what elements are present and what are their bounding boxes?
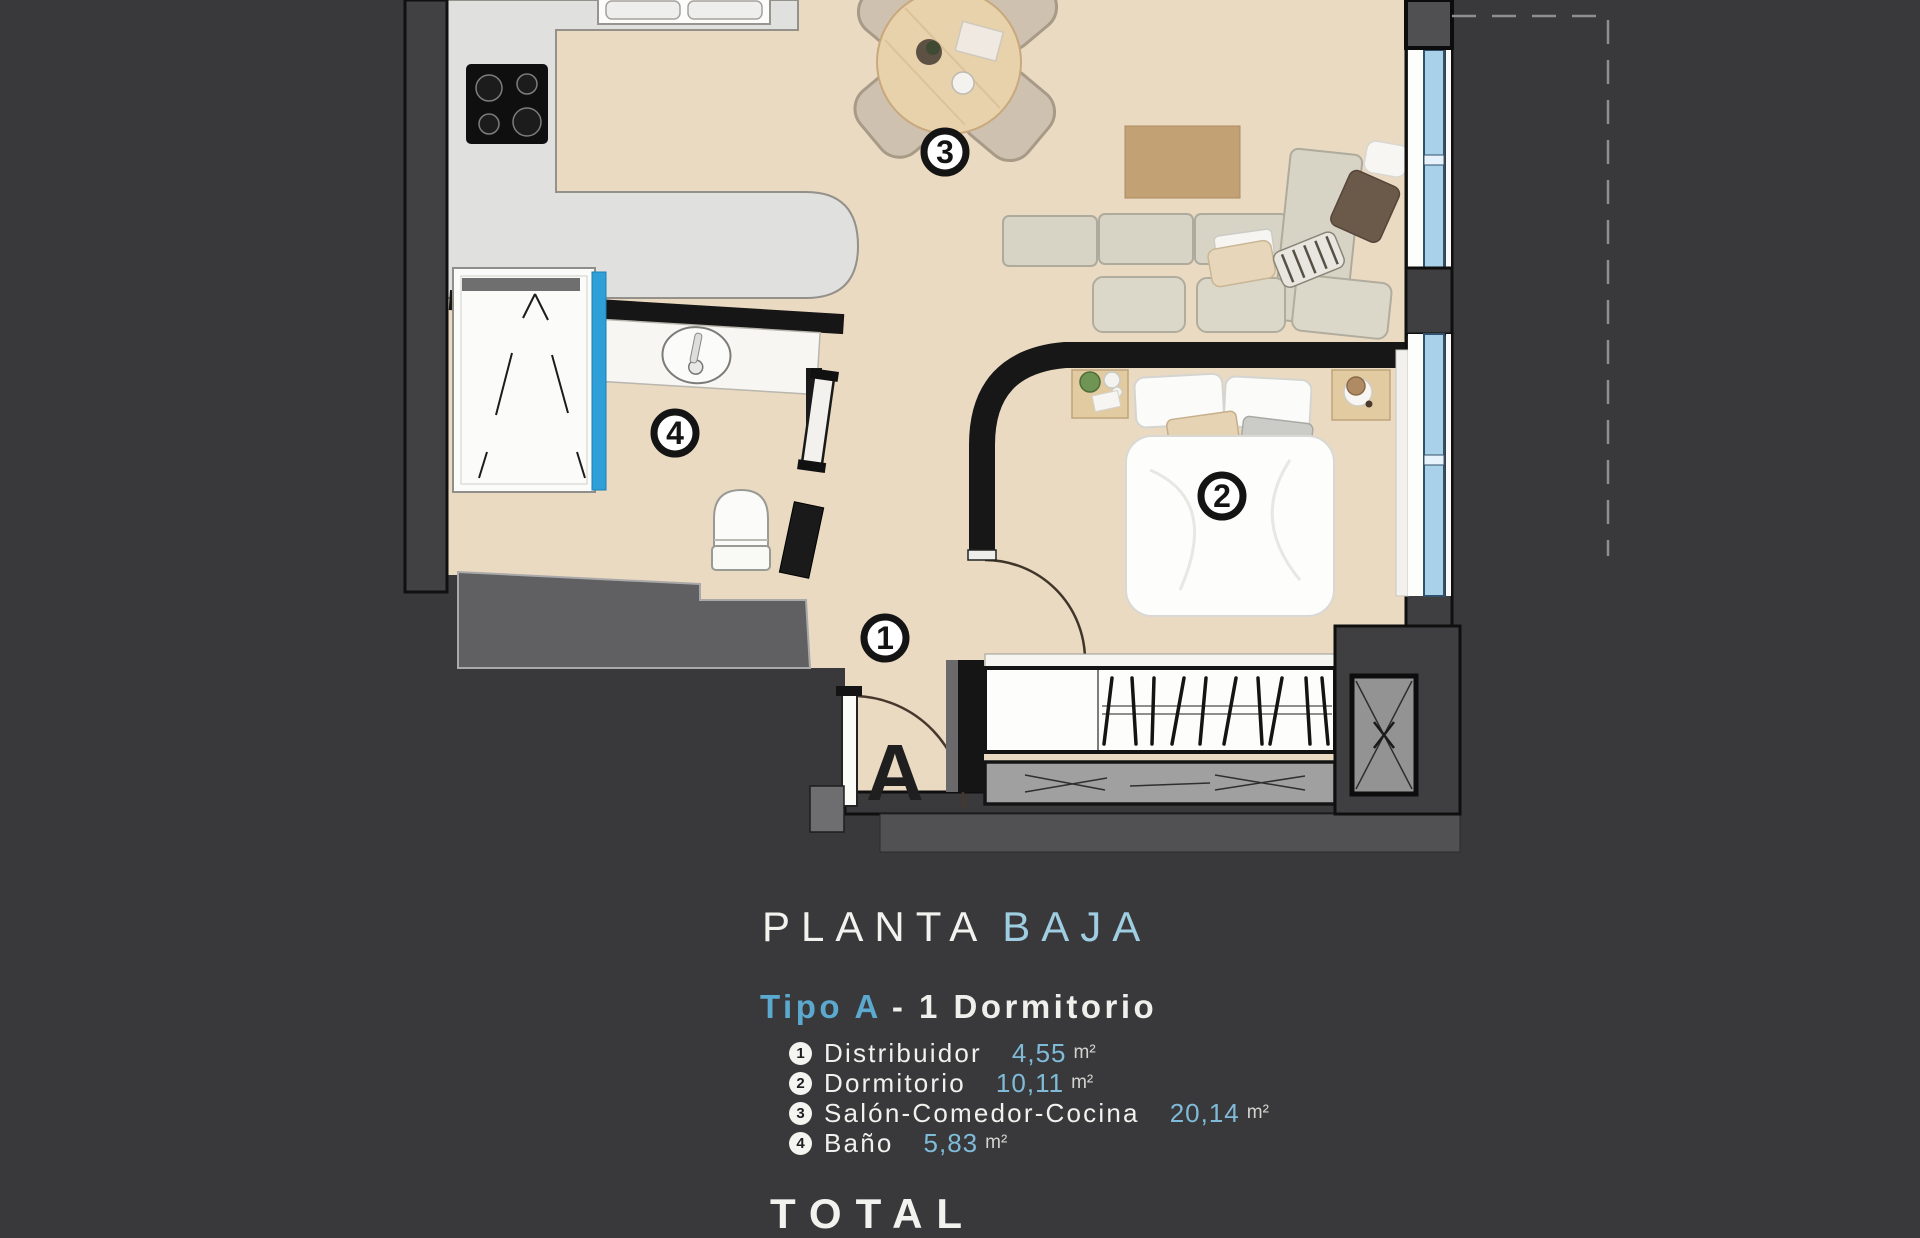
room-name: Salón-Comedor-Cocina <box>824 1098 1140 1129</box>
room-unit: m² <box>985 1132 1007 1154</box>
legend-row-dormitorio: 2 Dormitorio 10,11 m² <box>789 1068 1269 1098</box>
wall-left <box>405 0 447 592</box>
room-marker-1: 1 <box>864 617 906 659</box>
dining-table <box>877 0 1021 134</box>
legend-row-salon-comedor-cocina: 3 Salón-Comedor-Cocina 20,14 m² <box>789 1098 1269 1128</box>
rug <box>1125 126 1240 198</box>
boundary-dashed-line <box>1452 16 1608 556</box>
total-label: TOTAL <box>770 1190 976 1238</box>
table-plate <box>952 72 974 94</box>
room-marker-label: 3 <box>936 134 954 170</box>
room-legend: 1 Distribuidor 4,55 m² 2 Dormitorio 10,1… <box>789 1038 1269 1158</box>
room-marker-label: 2 <box>1213 478 1231 514</box>
shaft <box>1335 626 1460 814</box>
shower <box>453 268 606 492</box>
legend-bullet: 1 <box>789 1042 812 1065</box>
room-marker-2: 2 <box>1201 475 1243 517</box>
plan-subtitle: Tipo A- 1 Dormitorio <box>760 988 1157 1026</box>
shower-bar <box>462 278 580 291</box>
room-marker-label: 4 <box>666 415 684 451</box>
exterior-strip <box>880 814 1460 852</box>
room-name: Distribuidor <box>824 1038 982 1069</box>
room-marker-3: 3 <box>924 131 966 173</box>
room-unit: m² <box>1074 1042 1096 1064</box>
room-name: Baño <box>824 1128 894 1159</box>
window-living <box>1408 50 1451 268</box>
subtitle-type: Tipo A <box>760 988 882 1025</box>
room-area: 5,83 <box>924 1128 979 1159</box>
nightstand-plant <box>1080 372 1100 392</box>
room-area: 20,14 <box>1170 1098 1240 1129</box>
room-unit: m² <box>1247 1102 1269 1124</box>
unit-letter: A <box>866 728 924 817</box>
kitchen-cooktop <box>466 64 548 144</box>
subtitle-rest: - 1 Dormitorio <box>892 988 1157 1025</box>
window-bedroom <box>1396 334 1451 596</box>
legend-bullet: 3 <box>789 1102 812 1125</box>
toilet <box>712 490 770 570</box>
plan-title-main: PLANTA <box>762 903 988 950</box>
legend-bullet: 4 <box>789 1132 812 1155</box>
kitchen-sink <box>598 0 770 24</box>
legend-bullet: 2 <box>789 1072 812 1095</box>
dresser <box>985 762 1335 804</box>
shower-glass <box>592 272 606 490</box>
room-area: 4,55 <box>1012 1038 1067 1069</box>
room-marker-4: 4 <box>654 412 696 454</box>
plan-title: PLANTABAJA <box>762 903 1151 951</box>
bed-duvet <box>1126 436 1334 616</box>
page: { "title": { "main": "PLANTA", "accent":… <box>0 0 1920 1200</box>
room-name: Dormitorio <box>824 1068 966 1099</box>
plan-title-accent: BAJA <box>1002 903 1151 950</box>
wall-corner-block <box>1406 0 1452 48</box>
room-unit: m² <box>1071 1072 1093 1094</box>
legend-row-distribuidor: 1 Distribuidor 4,55 m² <box>789 1038 1269 1068</box>
room-area: 10,11 <box>996 1068 1064 1099</box>
legend-row-bano: 4 Baño 5,83 m² <box>789 1128 1269 1158</box>
room-marker-label: 1 <box>876 620 894 656</box>
